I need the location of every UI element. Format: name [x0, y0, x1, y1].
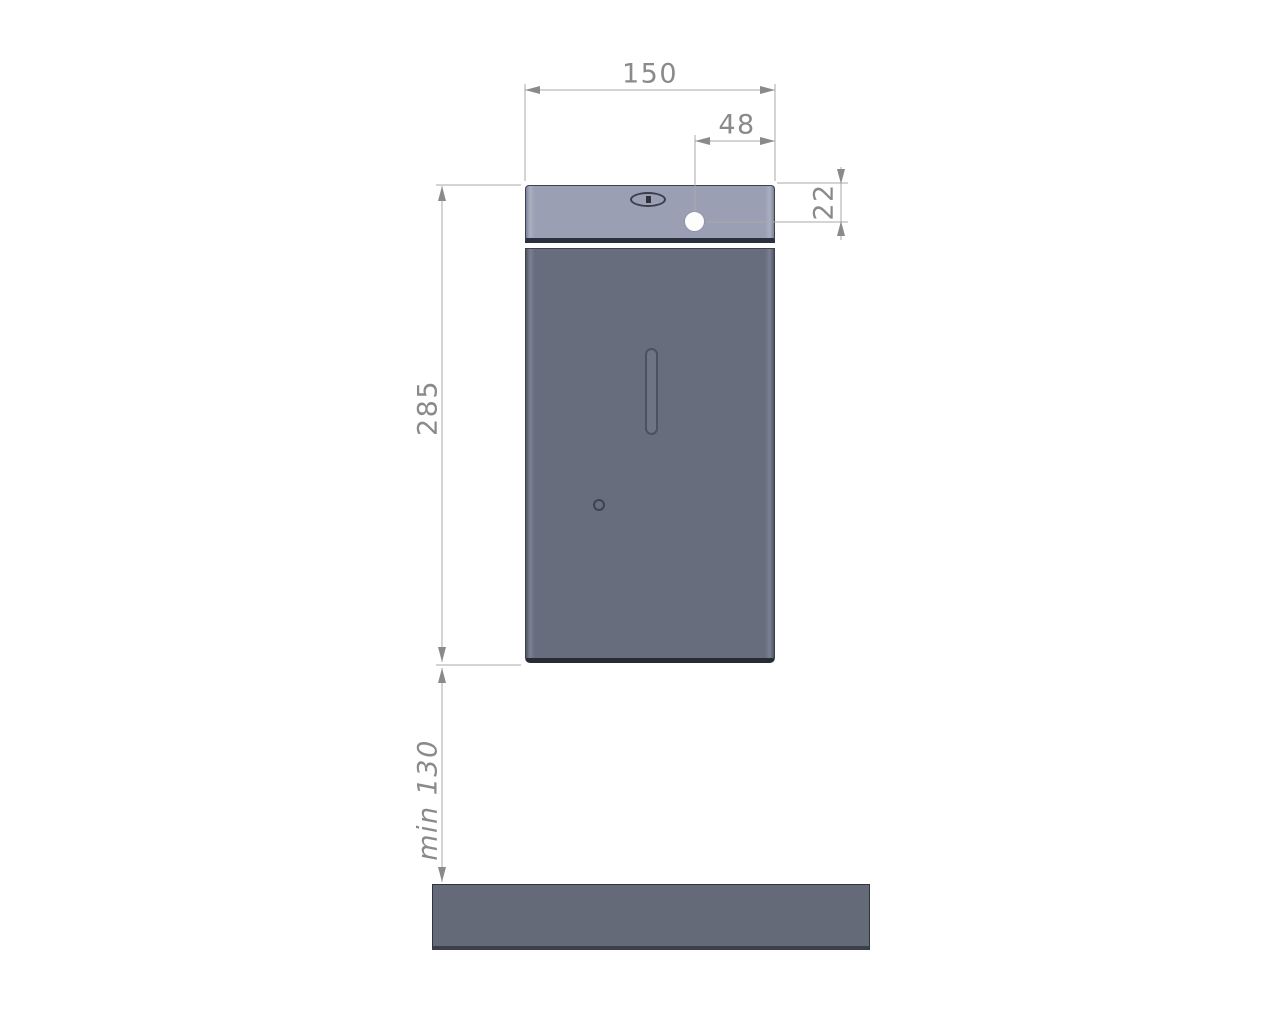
level-window-slot: [645, 348, 658, 435]
arrow-body-height-bottom: [438, 647, 446, 662]
arrow-clearance-bottom: [438, 867, 446, 882]
sensor-dot: [593, 499, 605, 511]
dim-label-overall-width: 150: [622, 61, 678, 88]
arrow-width-left: [525, 86, 540, 94]
technical-drawing: 150 48 22 285 min 130: [0, 0, 1280, 1024]
arrow-hole-offset-left: [695, 137, 710, 145]
mounting-hole: [684, 211, 705, 232]
arrow-hole-top-lower: [837, 221, 845, 236]
dim-label-hole-from-top: 22: [811, 183, 838, 220]
lock-pin-icon: [646, 196, 651, 203]
arrow-clearance-top: [438, 668, 446, 683]
arrow-width-right: [760, 86, 775, 94]
arrow-hole-offset-right: [760, 137, 775, 145]
arrow-hole-top-upper: [837, 169, 845, 184]
dim-label-mounting-clearance: min 130: [415, 739, 442, 861]
dim-label-body-height: 285: [415, 380, 442, 436]
dispenser-body: [525, 248, 775, 663]
arrow-body-height-top: [438, 186, 446, 201]
dim-label-hole-offset: 48: [718, 112, 755, 139]
counter-surface: [432, 884, 870, 950]
